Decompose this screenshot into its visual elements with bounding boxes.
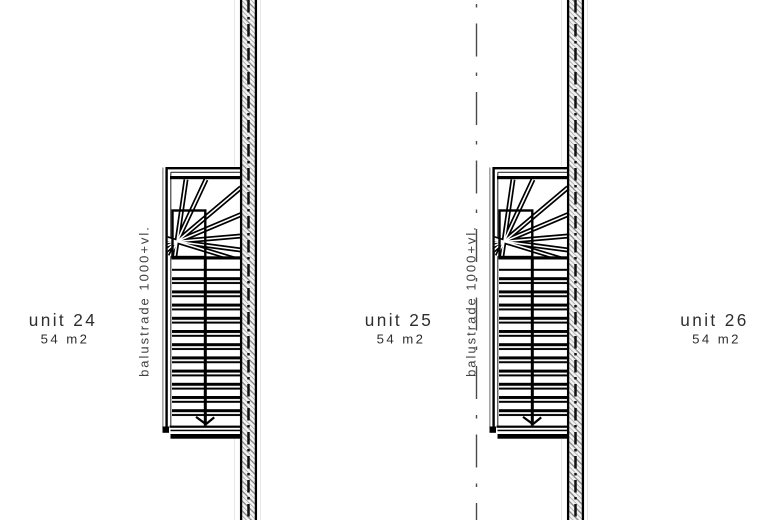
svg-text:unit 26: unit 26 — [680, 310, 748, 330]
svg-text:unit 25: unit 25 — [365, 310, 433, 330]
svg-text:unit 24: unit 24 — [29, 310, 97, 330]
svg-text:54 m2: 54 m2 — [377, 332, 426, 347]
svg-text:balustrade 1000+vl.: balustrade 1000+vl. — [464, 225, 479, 377]
svg-text:54 m2: 54 m2 — [41, 332, 90, 347]
svg-text:balustrade 1000+vl.: balustrade 1000+vl. — [137, 225, 152, 377]
svg-text:54 m2: 54 m2 — [692, 332, 741, 347]
